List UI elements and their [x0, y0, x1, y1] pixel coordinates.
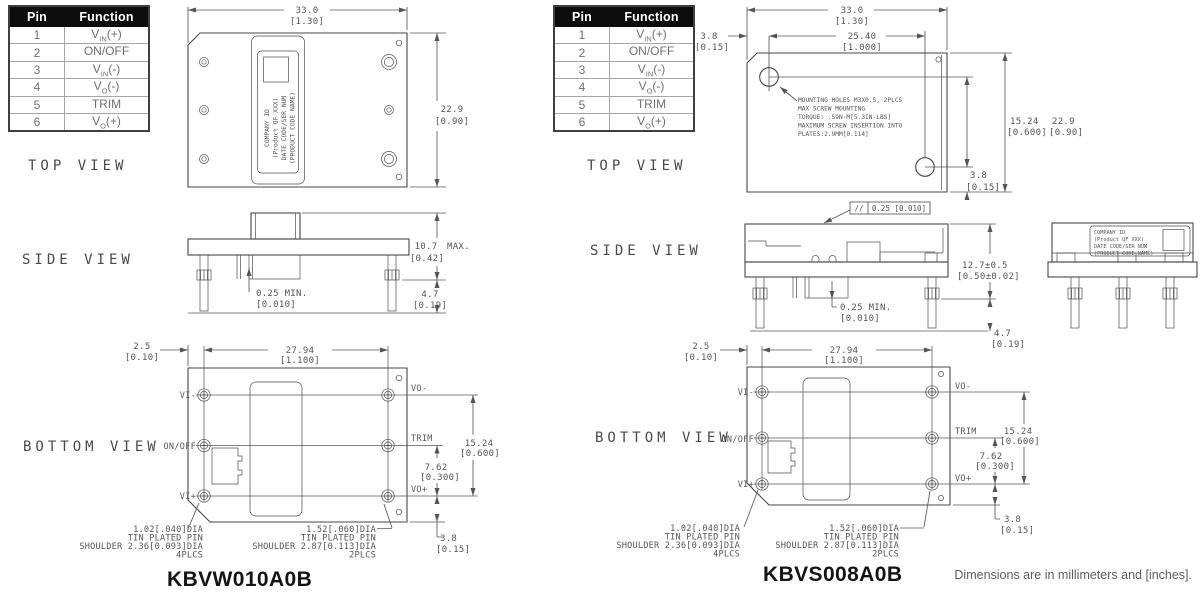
dim-height: 22.9	[441, 105, 464, 115]
dim-height: 22.9	[1052, 117, 1075, 127]
svg-text:4PLCS: 4PLCS	[713, 550, 740, 560]
dim-half-span: 7.62	[980, 452, 1003, 462]
dim-width-in: [1.30]	[290, 17, 324, 27]
dim-bottom-edge: 3.8	[1004, 515, 1021, 525]
product-label-sleeve: COMPANY ID (Product QF XXX) DATE CODE/SE…	[252, 36, 305, 184]
svg-text:COMPANY ID: COMPANY ID	[1094, 230, 1125, 236]
svg-text://: //	[854, 204, 863, 213]
svg-text:MOUNTING HOLES M3X0.5, 2PLCS: MOUNTING HOLES M3X0.5, 2PLCS	[798, 97, 903, 104]
dim-hole-offset: 3.8	[700, 32, 717, 42]
pin-label: VO-	[411, 384, 427, 394]
right-front-view: COMPANY ID (Product QF XXX) DATE CODE/SE…	[1048, 223, 1197, 328]
pin-label: VI-	[738, 388, 754, 398]
label-line: (PRODUCT CODE NAME)	[290, 92, 297, 164]
dim-pin-length-in: [0.19]	[413, 301, 447, 311]
dim-pitch-in: [1.100]	[824, 356, 864, 366]
right-top-view: MOUNTING HOLES M3X0.5, 2PLCS MAX SCREW M…	[695, 6, 1083, 200]
pin-holes-top-view	[200, 55, 397, 167]
mounting-note: MOUNTING HOLES M3X0.5, 2PLCS MAX SCREW M…	[798, 97, 903, 138]
dim-row-span: 15.24	[465, 439, 494, 449]
dim-hole-pitch-in: [1.000]	[842, 43, 882, 53]
dim-row-span-in: [0.600]	[460, 449, 500, 459]
dim-standoff: 0.25 MIN.	[840, 303, 891, 313]
dim-pin-length: 4.7	[994, 329, 1011, 339]
pin-label: VI+	[738, 480, 754, 490]
dim-bottom-edge-in: [0.15]	[436, 545, 470, 555]
pin-label: VO-	[955, 382, 971, 392]
dim-standoff-in: [0.010]	[840, 314, 880, 324]
right-side-view: // 0.25 [0.010] 0.	[745, 202, 1025, 350]
dim-standoff-in: [0.010]	[256, 300, 296, 310]
dim-height-in: [0.90]	[435, 117, 469, 127]
through-pins-side	[197, 255, 399, 311]
label-line: (Product QF XXX)	[273, 98, 280, 159]
left-bottom-view: VI- ON/OFF VI+ VO- TRIM VO+ 2.5 [0.10] 2…	[79, 342, 500, 561]
dim-edge-in: [0.10]	[684, 353, 718, 363]
dim-module-height: 10.7	[415, 242, 438, 252]
dim-row-span-in: [0.600]	[1000, 437, 1040, 447]
svg-text:MAX SCREW MOUNTING: MAX SCREW MOUNTING	[798, 106, 865, 113]
dim-hole-span-in: [0.600]	[1007, 128, 1047, 138]
svg-text:DATE CODE/SER NUM: DATE CODE/SER NUM	[1094, 244, 1147, 250]
pin-note-small: 1.02[.040]DIA TIN PLATED PIN SHOULDER 2.…	[79, 525, 203, 561]
dim-width: 33.0	[841, 6, 864, 16]
dim-bottom-edge: 3.8	[440, 534, 457, 544]
dim-hole-offset2-in: [0.15]	[966, 183, 1000, 193]
connector-outline	[768, 441, 795, 473]
dim-bottom-edge-in: [0.15]	[1000, 526, 1034, 536]
left-top-view: COMPANY ID (Product QF XXX) DATE CODE/SE…	[188, 6, 469, 187]
svg-text:0.25 [0.010]: 0.25 [0.010]	[872, 204, 926, 213]
dim-pin-length-in: [0.19]	[991, 340, 1025, 350]
dim-module-height-in: [0.42]	[410, 254, 444, 264]
svg-text:PLATES:2.9MM[0.114]: PLATES:2.9MM[0.114]	[798, 131, 869, 138]
product-label: COMPANY ID (Product QF XXX) DATE CODE/SE…	[1090, 226, 1190, 257]
svg-text:(PRODUCT CODE NAME): (PRODUCT CODE NAME)	[1094, 251, 1153, 257]
dim-pitch: 27.94	[830, 346, 859, 356]
pin-label: VI-	[180, 391, 196, 401]
dim-height-in: [0.90]	[1049, 128, 1083, 138]
dim-module-height: 12.7±0.5	[962, 261, 1008, 271]
svg-text:2PLCS: 2PLCS	[349, 551, 376, 561]
svg-text:TORQUE: .59N-M[5.3IN-LBS]: TORQUE: .59N-M[5.3IN-LBS]	[798, 114, 891, 121]
pin-label: ON/OFF	[721, 435, 754, 445]
dim-half-span-in: [0.300]	[975, 462, 1015, 472]
dim-half-span: 7.62	[425, 463, 448, 473]
dim-hole-offset2: 3.8	[970, 171, 987, 181]
dim-hole-pitch: 25.40	[848, 32, 877, 42]
dim-edge: 2.5	[692, 342, 709, 352]
drawing-canvas: COMPANY ID (Product QF XXX) DATE CODE/SE…	[0, 0, 1200, 596]
pin-label: VO+	[955, 474, 971, 484]
dim-width: 33.0	[296, 6, 319, 16]
datasheet-mechanical-drawing: Pin Function 1VIN(+) 2ON/OFF 3VIN(-) 4VO…	[0, 0, 1200, 596]
dim-module-height-in: [0.50±0.02]	[957, 272, 1020, 282]
pin-label: VI+	[180, 492, 196, 502]
pin-label: VO+	[411, 485, 427, 495]
svg-text:2PLCS: 2PLCS	[872, 550, 899, 560]
dim-hole-span: 15.24	[1010, 117, 1039, 127]
svg-text:MAXIMUM SCREW INSERTION INTO: MAXIMUM SCREW INSERTION INTO	[798, 123, 903, 130]
dim-width-in: [1.30]	[835, 17, 869, 27]
pin-label: TRIM	[955, 427, 977, 437]
dim-pin-length: 4.7	[421, 290, 438, 300]
pin-label: TRIM	[411, 434, 433, 444]
svg-text:(Product QF XXX): (Product QF XXX)	[1094, 237, 1144, 243]
dim-hole-offset-in: [0.15]	[695, 43, 729, 53]
dim-row-span: 15.24	[1004, 427, 1033, 437]
dim-pitch: 27.94	[286, 346, 315, 356]
dim-edge-in: [0.10]	[125, 353, 159, 363]
pin-note-large: 1.52[.060]DIA TIN PLATED PIN SHOULDER 2.…	[775, 524, 899, 560]
dim-edge: 2.5	[133, 342, 150, 352]
dim-half-span-in: [0.300]	[420, 473, 460, 483]
pin-note-small: 1.02[.040]DIA TIN PLATED PIN SHOULDER 2.…	[616, 524, 740, 560]
through-pins-front	[1068, 277, 1177, 328]
dim-max: MAX.	[447, 242, 470, 252]
connector-outline	[212, 448, 242, 484]
pin-label: ON/OFF	[163, 442, 196, 452]
label-line: COMPANY ID	[264, 109, 271, 147]
dim-standoff: 0.25 MIN.	[256, 289, 307, 299]
right-bottom-view: VI- ON/OFF VI+ VO- TRIM VO+ 2.5 [0.10] 2…	[616, 342, 1040, 560]
dim-pitch-in: [1.100]	[280, 356, 320, 366]
label-line: DATE CODE/SER NUM	[281, 96, 288, 161]
parallelism-callout: // 0.25 [0.010]	[824, 202, 930, 223]
pin-note-large: 1.52[.060]DIA TIN PLATED PIN SHOULDER 2.…	[252, 525, 376, 561]
left-side-view: 0.25 MIN. [0.010] 10.7 MAX. [0.42] 4.7 […	[188, 213, 470, 313]
svg-text:4PLCS: 4PLCS	[176, 551, 203, 561]
